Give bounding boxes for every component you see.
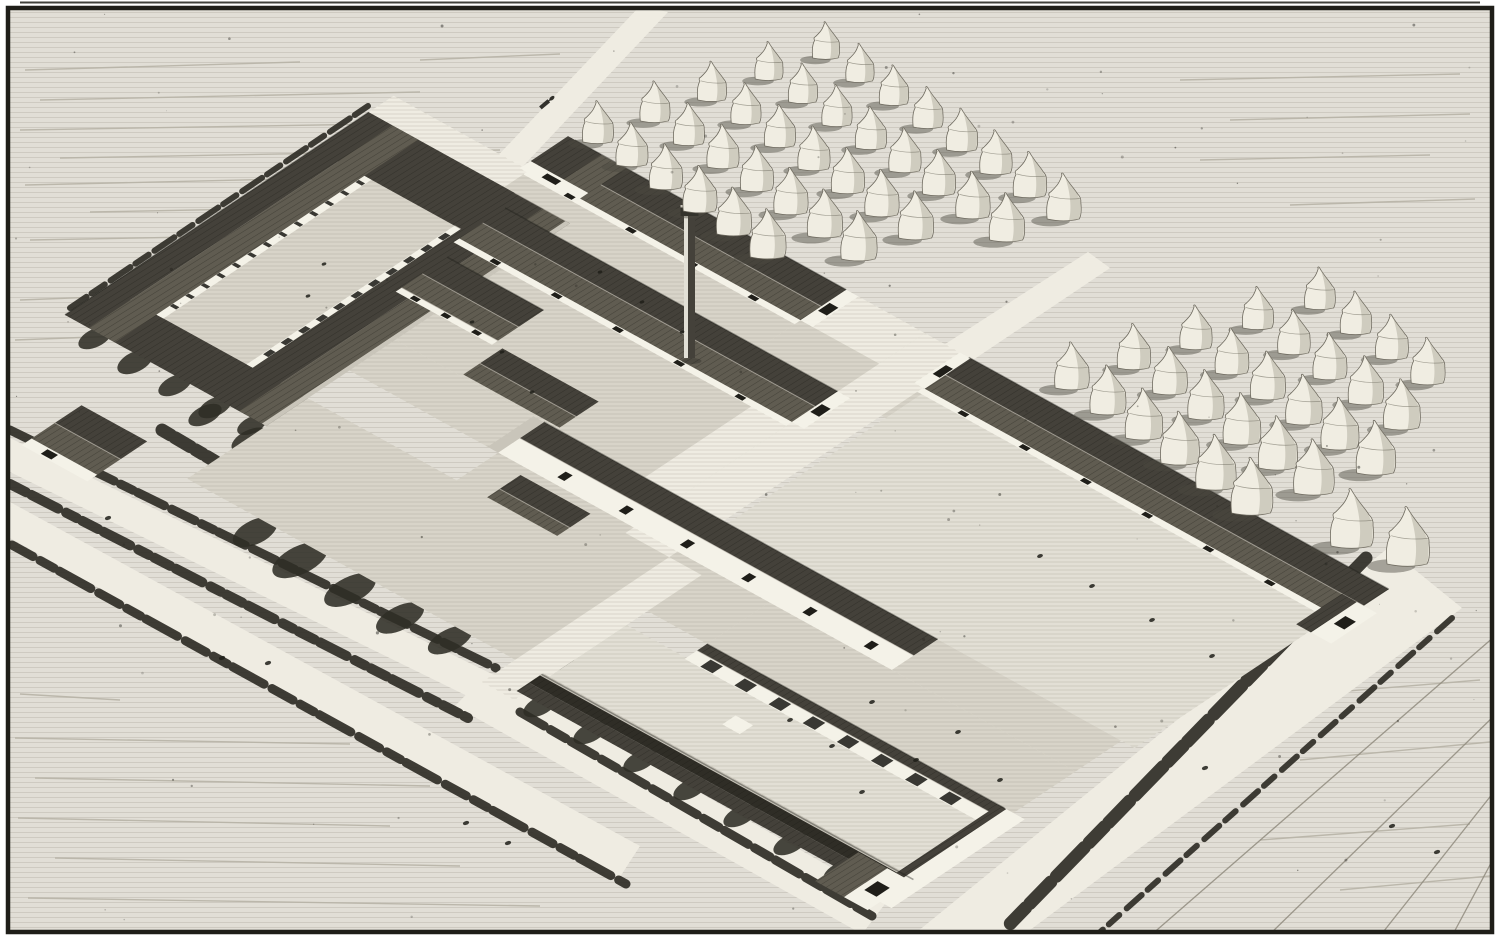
engraving-plate: Black-and-white wood engraving, bird's-e… <box>0 0 1500 940</box>
farm-engraving <box>0 0 1500 940</box>
plate-hairline <box>20 2 1480 4</box>
